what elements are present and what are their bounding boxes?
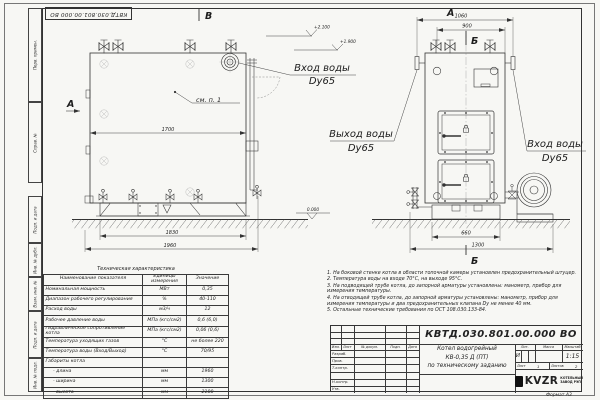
dim-1700: 1700	[162, 127, 175, 133]
format-label: Формат А3	[531, 393, 587, 398]
outlet-pipe	[413, 187, 432, 209]
spec-cell: Рабочее давление воды	[44, 316, 143, 326]
spec-cell: - высота	[44, 388, 143, 398]
spec-cell: 70/95	[187, 347, 229, 357]
door-swing-arc	[257, 77, 280, 98]
spec-row: - длинамм1960	[44, 368, 229, 378]
col-podp: Подп.	[385, 345, 406, 349]
sheet-value: 1	[537, 364, 539, 369]
view-label-b: В	[205, 11, 212, 22]
callout-dot	[174, 91, 176, 93]
spec-row: Номинальная мощностьМВт0,35	[44, 285, 229, 295]
spec-row: Температура уходящих газов°Сне более 220	[44, 337, 229, 347]
dim-1060: 1060	[455, 14, 468, 20]
dimension-lines	[85, 17, 553, 253]
spec-cell: МПа (кгс/см2)	[143, 326, 187, 337]
control-panel	[474, 69, 498, 87]
spec-cell: °С	[143, 347, 187, 357]
spec-cell	[143, 357, 187, 367]
inlet-flange	[511, 57, 515, 70]
front-top-valves	[431, 40, 495, 54]
margin-cell-podp-data-2: Подп. и дата	[28, 311, 42, 358]
side-top-valves	[99, 40, 236, 54]
inlet-front-label: Вход воды	[522, 139, 588, 150]
spec-cell: 40-110	[187, 296, 229, 306]
title-block: КВТД.030.801.00.000 ВО Изм. Лист № докум…	[330, 325, 582, 392]
blower-fan	[505, 173, 553, 222]
view-label-a-front: А	[446, 8, 454, 19]
spec-row: Температура воды (Вход/Выход)°С70/95	[44, 347, 229, 357]
dim-1300: 1300	[472, 243, 485, 249]
spec-row: Расход водым3/ч12	[44, 306, 229, 316]
spec-cell: Температура уходящих газов	[44, 337, 143, 347]
spec-cell: МВт	[143, 285, 187, 295]
col-data: Дата	[406, 345, 419, 349]
spec-cell: %	[143, 296, 187, 306]
notes-block: 1. На боковой стенке котла в области топ…	[327, 271, 582, 314]
note-item: 3. На подводящей трубе котла, до запорно…	[327, 284, 582, 296]
side-bottom-valves	[99, 185, 261, 203]
spec-cell: не более 220	[187, 337, 229, 347]
spec-cell: 0,06 (0,6)	[187, 326, 229, 337]
sheets-label: Листов	[551, 364, 564, 368]
dim-1960: 1960	[164, 243, 177, 249]
elev-2100: +2.100	[314, 25, 330, 31]
row-utv: Утв.	[332, 387, 340, 391]
inlet-front-dn: Dy65	[522, 153, 588, 164]
spec-header-row: Наименование показателя Единицы измерени…	[44, 275, 229, 286]
product-name-3: по техническому заданию	[419, 363, 515, 369]
note-item: 5. Остальные технические требования по О…	[327, 308, 582, 314]
side-inlet-flange	[220, 52, 241, 73]
sheets-value: 2	[575, 364, 577, 369]
margin-cell-inv-podl: Инв. № подл.	[28, 358, 42, 392]
spec-cell: м3/ч	[143, 306, 187, 316]
drawing-sheet: Перв. примен. Справ. № Подп. и дата Инв.…	[0, 0, 600, 400]
spec-cell: 0,35	[187, 285, 229, 295]
view-label-a-side: А	[66, 99, 74, 110]
company-logo: KVZR КОТЕЛЬНЫЙ ЗАВОД РЭП	[515, 370, 583, 392]
row-razrab: Разраб.	[332, 352, 347, 356]
logo-caption: КОТЕЛЬНЫЙ ЗАВОД РЭП	[560, 377, 583, 384]
spec-cell: Расход воды	[44, 306, 143, 316]
inlet-side-label: Вход воды	[288, 63, 356, 74]
mass-header: Масса	[535, 345, 562, 349]
spec-header: Наименование показателя	[44, 275, 143, 286]
spec-cell: Температура воды (Вход/Выход)	[44, 347, 143, 357]
margin-label: Подп. и дата	[33, 321, 38, 348]
callout-text: см. п. 1	[196, 96, 221, 104]
spec-cell: МПа (кгс/см2)	[143, 316, 187, 326]
elev-0000: 0.000	[307, 207, 320, 213]
col-izm: Изм.	[331, 345, 341, 349]
side-view	[85, 52, 280, 217]
sheet-label: Лист	[517, 364, 526, 368]
logo-caption-line: ЗАВОД РЭП	[560, 381, 583, 385]
spec-cell: - ширина	[44, 378, 143, 388]
spec-cell: Диапазон рабочего регулирования	[44, 296, 143, 306]
margin-label: Инв. № подл.	[33, 361, 38, 389]
dim-660: 660	[461, 231, 471, 237]
note-item: 1. На боковой стенке котла в области топ…	[327, 271, 582, 277]
side-base	[100, 203, 246, 216]
spec-cell: Номинальная мощность	[44, 285, 143, 295]
spec-cell: 12	[187, 306, 229, 316]
product-name-1: Котел водогрейный	[419, 346, 515, 352]
col-dokum: № докум.	[354, 345, 385, 349]
elev-1900: +1.900	[340, 39, 356, 45]
dim-1830: 1830	[166, 230, 179, 236]
spec-cell: 1960	[187, 368, 229, 378]
designation: КВТД.030.801.00.000 ВО	[420, 327, 582, 343]
spec-table: Наименование показателя Единицы измерени…	[43, 274, 229, 399]
scale-header: Масштаб	[562, 345, 583, 349]
drawing-canvas: 1700 1830 1960 1060 900 660 1300 +2.100 …	[0, 0, 600, 265]
section-label-b-top: Б	[471, 36, 478, 47]
spec-cell: мм	[143, 378, 187, 388]
side-downpipe	[247, 58, 258, 190]
spec-row: - высотамм2100	[44, 388, 229, 398]
note-item: 2. Температура воды на входе 70°С, на вы…	[327, 277, 582, 283]
spec-cell: 0,6 (6,0)	[187, 316, 229, 326]
scale-value: 1:15	[562, 353, 583, 360]
side-port-symbols	[100, 60, 194, 214]
inlet-side-dn: Dy65	[288, 76, 356, 87]
margin-cell-vzam-inv: Взам. инв. №	[28, 277, 42, 311]
outlet-label: Выход воды	[326, 129, 396, 140]
outlet-dn: Dy65	[326, 143, 396, 154]
logo-text: KVZR	[525, 375, 559, 387]
spec-row: Гидравлическое сопротивление котлаМПа (к…	[44, 326, 229, 337]
row-tkontr: Т.контр.	[332, 366, 348, 370]
elevation-marks	[266, 30, 343, 220]
spec-cell: 2100	[187, 388, 229, 398]
product-name-2: КВ-0,35 Д (ПТ)	[419, 355, 515, 361]
spec-cell: - длина	[44, 368, 143, 378]
row-nkontr: Н.контр.	[332, 380, 349, 384]
spec-header: Значение	[187, 275, 229, 286]
col-list: Лист	[341, 345, 355, 349]
lit-value: И	[515, 353, 522, 359]
spec-cell: мм	[143, 388, 187, 398]
lit-header: Лит.	[515, 345, 536, 349]
outlet-flange	[415, 57, 419, 70]
front-view	[413, 53, 553, 222]
spec-row: Рабочее давление водыМПа (кгс/см2)0,6 (6…	[44, 316, 229, 326]
margin-label: Взам. инв. №	[33, 280, 38, 307]
section-label-b-bottom: Б	[471, 256, 478, 265]
spec-cell: °С	[143, 337, 187, 347]
spec-table-title: Техническая характеристика	[43, 266, 229, 272]
spec-row: Габариты котла	[44, 357, 229, 367]
spec-cell: мм	[143, 368, 187, 378]
ground	[72, 220, 570, 229]
dim-900: 900	[462, 24, 472, 30]
logo-mark-icon	[515, 376, 523, 387]
spec-row: - ширинамм1300	[44, 378, 229, 388]
row-prov: Пров.	[332, 359, 343, 363]
spec-cell: Габариты котла	[44, 357, 143, 367]
note-item: 4. На отводящей трубе котла, до запорной…	[327, 296, 582, 308]
spec-header: Единицы измерения	[143, 275, 187, 286]
spec-cell	[187, 357, 229, 367]
spec-cell: Гидравлическое сопротивление котла	[44, 326, 143, 337]
spec-cell: 1300	[187, 378, 229, 388]
spec-row: Диапазон рабочего регулирования%40-110	[44, 296, 229, 306]
